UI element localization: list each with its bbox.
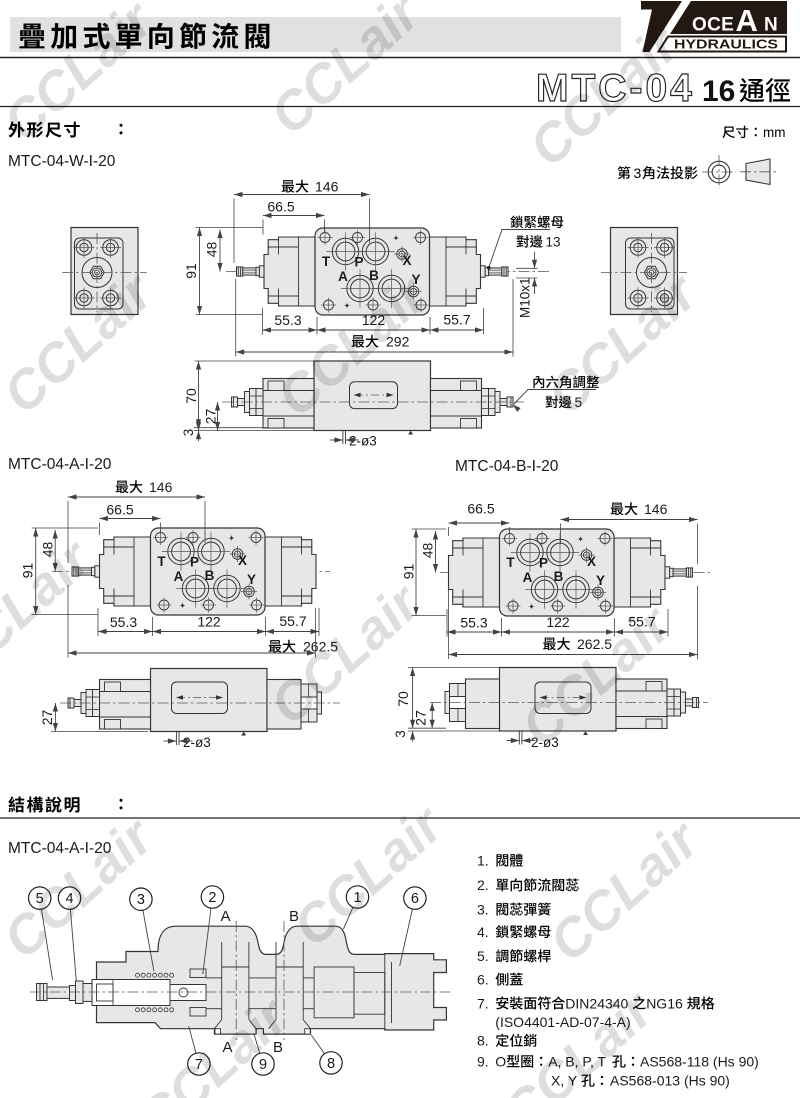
svg-text:P: P [190, 555, 199, 570]
svg-text:AS568-118 (Hs 90): AS568-118 (Hs 90) [640, 1054, 759, 1070]
svg-text:B: B [554, 569, 564, 584]
svg-text:9.: 9. [477, 1054, 489, 1070]
svg-text:MTC-04-B-I-20: MTC-04-B-I-20 [455, 458, 559, 475]
svg-text:B: B [369, 268, 379, 283]
svg-text:6.: 6. [477, 972, 489, 988]
svg-text:55.3: 55.3 [460, 615, 487, 631]
svg-text:6: 6 [411, 891, 419, 907]
svg-text:2-ø3: 2-ø3 [183, 735, 211, 750]
svg-text:3: 3 [393, 730, 408, 738]
svg-text:48: 48 [419, 543, 435, 559]
svg-text:A: A [338, 269, 348, 284]
svg-text:Y: Y [247, 572, 256, 587]
svg-text:Y: Y [596, 573, 605, 588]
svg-text:7.: 7. [477, 995, 489, 1011]
svg-text:P: P [539, 556, 548, 571]
svg-text:NG16: NG16 [646, 995, 683, 1011]
svg-text:55.7: 55.7 [279, 613, 306, 629]
svg-text:70: 70 [395, 691, 411, 707]
svg-text:AS568-013 (Hs 90): AS568-013 (Hs 90) [610, 1073, 730, 1089]
svg-text:1.: 1. [477, 853, 489, 869]
svg-text:T: T [506, 555, 515, 570]
svg-text:P: P [354, 255, 363, 270]
svg-text:A: A [523, 570, 533, 585]
svg-text:A: A [736, 3, 758, 38]
svg-text:66.5: 66.5 [467, 501, 494, 517]
svg-text:122: 122 [197, 614, 221, 630]
svg-text:146: 146 [644, 501, 668, 517]
svg-text:3: 3 [634, 165, 642, 181]
svg-text:MTC-04-A-I-20: MTC-04-A-I-20 [8, 456, 112, 473]
svg-text:B: B [205, 568, 215, 583]
svg-text:4.: 4. [477, 924, 489, 940]
svg-text:91: 91 [400, 564, 416, 580]
svg-text:8: 8 [327, 1056, 335, 1072]
svg-text:13: 13 [546, 235, 561, 250]
svg-text:122: 122 [546, 614, 570, 630]
svg-text:X: X [587, 554, 596, 569]
svg-text:N: N [764, 15, 778, 36]
svg-text:3.: 3. [477, 901, 489, 917]
svg-text:HYDRAULICS: HYDRAULICS [674, 38, 778, 52]
svg-text:66.5: 66.5 [267, 199, 294, 215]
svg-text:8.: 8. [477, 1033, 489, 1049]
svg-text:27: 27 [202, 409, 218, 425]
svg-text:16: 16 [702, 75, 735, 108]
svg-text:27: 27 [39, 710, 55, 726]
svg-text:3: 3 [137, 892, 145, 908]
svg-text:70: 70 [183, 388, 199, 404]
svg-text:2-ø3: 2-ø3 [349, 434, 377, 449]
svg-text:OCE: OCE [692, 15, 734, 36]
svg-text:X: X [402, 253, 411, 268]
svg-text:T: T [322, 254, 331, 269]
svg-text:T: T [157, 554, 166, 569]
svg-text:3: 3 [181, 429, 196, 437]
svg-text:55.7: 55.7 [443, 312, 470, 328]
svg-text:M10x1: M10x1 [518, 277, 533, 318]
svg-text:27: 27 [412, 710, 428, 726]
svg-text:146: 146 [315, 179, 339, 195]
svg-text:O: O [495, 1054, 506, 1070]
svg-text:X: X [238, 553, 247, 568]
svg-text:91: 91 [183, 263, 199, 279]
svg-text:A: A [174, 569, 184, 584]
svg-text:2.: 2. [477, 877, 489, 893]
svg-text:MTC-04-W-I-20: MTC-04-W-I-20 [8, 153, 116, 170]
svg-text:66.5: 66.5 [106, 502, 133, 518]
svg-text:146: 146 [149, 479, 173, 495]
svg-text:55.3: 55.3 [110, 614, 137, 630]
svg-text:5.: 5. [477, 948, 489, 964]
svg-text:55.3: 55.3 [274, 312, 301, 328]
svg-text:48: 48 [203, 242, 219, 258]
svg-text:2: 2 [208, 890, 216, 906]
svg-text:A: A [220, 908, 230, 925]
svg-text:mm: mm [763, 125, 786, 140]
